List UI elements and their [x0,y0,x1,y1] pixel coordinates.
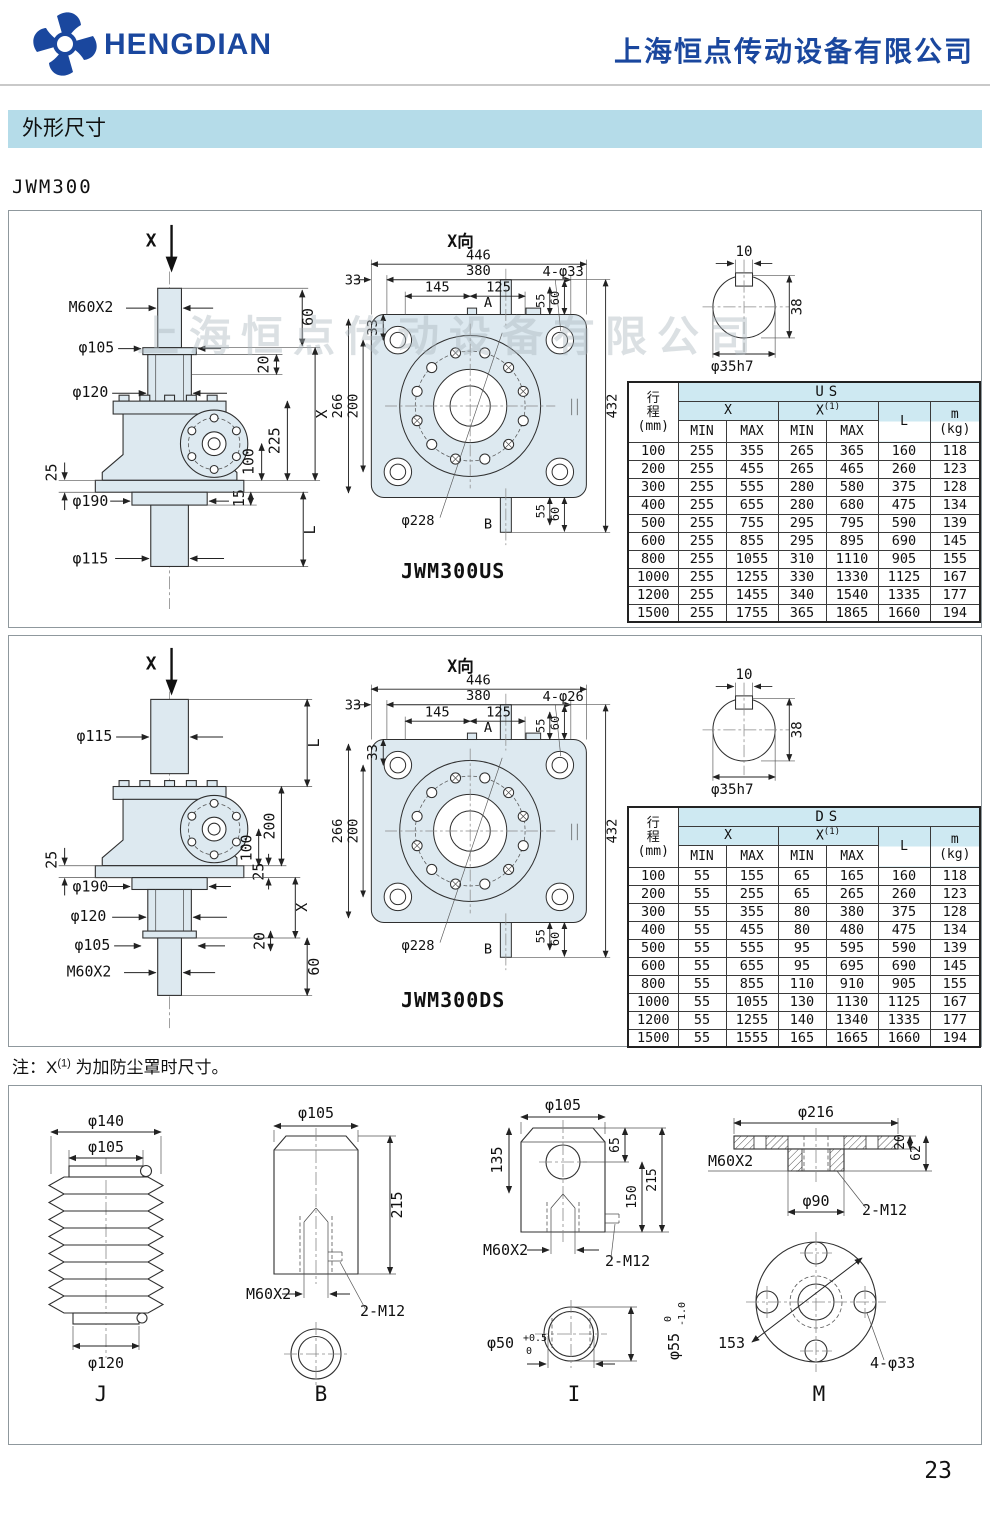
table-cell: 265 [826,885,878,903]
table-cell: 65 [778,885,826,903]
table-cell: 310 [778,550,826,568]
port-label: B [484,942,492,958]
table-cell: 1000 [628,993,678,1011]
col-header-x1: X(1) [778,826,878,845]
clevis-end-drawing-i: φ105 135 65 150 215 M60X2 2-M12 [479,1096,709,1396]
dim-label: 20 [251,932,269,950]
table-cell: 55 [678,1029,726,1047]
company-name: 上海恒点传动设备有限公司 [614,30,974,70]
fitting-label-i: I [554,1382,594,1406]
dim-label: φ190 [73,877,109,895]
col-header-stroke: 行 程 (mm) [628,382,678,442]
table-cell: 1130 [826,993,878,1011]
dim-label: φ35h7 [711,359,754,375]
port-label: A [484,720,493,736]
fitting-label-m: M [799,1382,839,1406]
table-cell: 123 [930,885,980,903]
table-cell: 300 [628,903,678,921]
table-cell: 690 [878,957,930,975]
table-row: 3005535580380375128 [628,903,980,921]
table-cell: 118 [930,442,980,460]
table-row: 6005565595695690145 [628,957,980,975]
table-cell: 55 [678,867,726,885]
dim-label: φ120 [88,1354,124,1372]
dim-label: 2-M12 [360,1302,405,1320]
table-cell: 167 [930,993,980,1011]
us-dimension-table: 行 程 (mm) US X X(1) L m(kg) MIN MAX MIN M… [627,381,981,623]
table-cell: 155 [726,867,778,885]
table-cell: 475 [878,921,930,939]
table-cell: 1540 [826,586,878,604]
table-cell: 55 [678,1011,726,1029]
dim-label: 100 [240,448,258,475]
table-row: 4005545580480475134 [628,921,980,939]
table-cell: 55 [678,975,726,993]
plain-end-drawing-b: φ105 215 M60X2 2-M12 [244,1102,454,1397]
port-label: A [484,295,493,311]
table-cell: 475 [878,496,930,514]
model-label: JWM300 [12,176,93,198]
table-cell: 55 [678,957,726,975]
ds-dimension-table: 行 程 (mm) DS X X(1) L m(kg) MIN MAX MIN M… [627,806,981,1048]
dim-label: φ105 [298,1104,334,1122]
table-cell: 155 [930,550,980,568]
table-cell: 580 [826,478,878,496]
dim-label: 65 [608,1137,623,1153]
table-cell: 295 [778,532,826,550]
table-cell: 139 [930,939,980,957]
table-cell: 895 [826,532,878,550]
table-cell: 855 [726,975,778,993]
panel-jwm300ds: X φ115 25 φ1 [8,635,982,1047]
table-row: 500255755295795590139 [628,514,980,532]
col-header-min: MIN [778,845,826,867]
table-cell: 255 [678,478,726,496]
table-cell: 255 [678,532,726,550]
port-label: B [484,517,492,533]
table-cell: 194 [930,1029,980,1047]
table-cell: 500 [628,939,678,957]
dim-label: M60X2 [708,1152,753,1170]
dim-label: 215 [645,1168,660,1191]
flange-bottom-view [746,1232,886,1372]
table-row: 100055105513011301125167 [628,993,980,1011]
dim-label: φ115 [77,727,113,745]
jack-body-shapes [95,288,247,566]
dim-label: 200 [261,813,279,840]
dim-label: 150 [625,1185,640,1208]
table-cell: 1340 [826,1011,878,1029]
dim-label: 38 [790,721,806,738]
table-cell: 55 [678,993,726,1011]
table-cell: 340 [778,586,826,604]
table-cell: 590 [878,939,930,957]
table-cell: 1665 [826,1029,878,1047]
table-cell: 260 [878,885,930,903]
table-cell: 480 [826,921,878,939]
table-cell: 1500 [628,604,678,622]
dim-label: φ55 [665,1333,683,1360]
table-cell: 375 [878,478,930,496]
table-cell: 280 [778,496,826,514]
table-row: 2005525565265260123 [628,885,980,903]
table-cell: 1200 [628,586,678,604]
dim-label: φ105 [88,1138,124,1156]
table-cell: 255 [678,568,726,586]
worm-shaft-section-drawing: 10 38 φ35h7 [695,233,827,375]
table-cell: 123 [930,460,980,478]
flange-end-drawing-m: φ216 20 62 M60X2 φ90 2-M12 [704,1102,954,1402]
dim-label: 55 [533,294,547,308]
table-cell: 134 [930,921,980,939]
table-cell: 255 [678,586,726,604]
table-cell: 455 [726,921,778,939]
dim-label: 266 [330,819,346,844]
dim-label: 2-M12 [605,1252,650,1270]
dim-label: φ35h7 [711,782,754,798]
dim-label: φ50 [487,1334,514,1352]
gearbox-face-shapes [371,269,586,545]
table-cell: 55 [678,921,726,939]
table-cell: 255 [678,442,726,460]
table-row: 1500255175536518651660194 [628,604,980,622]
dim-label: 215 [388,1191,406,1218]
dim-tolerance: -1.0 [677,1302,688,1326]
table-cell: 855 [726,532,778,550]
table-cell: 165 [778,1029,826,1047]
table-cell: 167 [930,568,980,586]
table-cell: 905 [878,550,930,568]
table-cell: 95 [778,939,826,957]
col-header-max: MAX [826,845,878,867]
dim-label: 446 [466,673,491,689]
bellows-drawing-j: φ140 φ105 φ120 [11,1110,211,1380]
table-cell: 255 [726,885,778,903]
dim-label: 4-φ33 [870,1354,915,1372]
dim-label: M60X2 [67,963,112,981]
dim-label: 62 [909,1145,924,1161]
table-cell: 118 [930,867,980,885]
col-header-group: US [678,382,980,401]
table-cell: 400 [628,496,678,514]
col-header-x: X [678,401,778,420]
table-cell: 655 [726,496,778,514]
dim-label: 200 [346,819,362,844]
dim-label: φ228 [402,513,435,529]
dim-label: φ228 [402,938,435,954]
dim-label: M60X2 [69,298,114,316]
dim-label: 60 [548,507,562,521]
table-cell: 465 [826,460,878,478]
dim-label: 380 [466,688,491,704]
header-divider [0,84,990,86]
col-header-x: X [678,826,778,845]
table-row: 150055155516516651660194 [628,1029,980,1047]
table-cell: 100 [628,442,678,460]
dim-label: 10 [736,667,753,683]
table-row: 300255555280580375128 [628,478,980,496]
dim-label: 2-M12 [862,1201,907,1219]
dim-label: 432 [605,819,621,844]
table-cell: 1255 [726,568,778,586]
col-header-max: MAX [826,420,878,442]
dim-label: 145 [425,280,450,296]
dim-label: M60X2 [483,1241,528,1259]
table-cell: 160 [878,867,930,885]
dim-label: 25 [43,463,61,481]
table-cell: 128 [930,478,980,496]
dim-label: 4-φ33 [542,264,583,280]
worm-shaft-section-drawing: 10 38 φ35h7 [695,656,827,798]
table-cell: 690 [878,532,930,550]
table-cell: 255 [678,460,726,478]
table-cell: 680 [826,496,878,514]
dim-label: 55 [533,929,547,943]
dim-label: X [293,903,311,912]
table-row: 400255655280680475134 [628,496,980,514]
table-cell: 1000 [628,568,678,586]
dim-label: 266 [330,394,346,419]
table-cell: 910 [826,975,878,993]
table-cell: 300 [628,478,678,496]
table-row: 600255855295895690145 [628,532,980,550]
dim-label: 33 [365,744,381,761]
table-cell: 375 [878,903,930,921]
dim-label-group: φ55 0 -1.0 [663,1302,688,1360]
table-cell: 200 [628,885,678,903]
cylinder-bottom-view [284,1322,348,1386]
dim-label: 55 [533,504,547,518]
dim-label: 20 [255,356,273,374]
dim-label: 125 [486,705,511,721]
table-cell: 365 [826,442,878,460]
drawing-caption: JWM300US [401,559,505,583]
table-cell: 1255 [726,1011,778,1029]
col-header-l: L [878,401,930,442]
col-header-min: MIN [778,420,826,442]
dim-label: 60 [299,308,317,326]
dim-tolerance: +0.5 [523,1333,547,1344]
dim-label: 145 [425,705,450,721]
table-cell: 155 [930,975,980,993]
hengdian-logo-icon [30,8,100,80]
jwm300us-side-view-drawing: X M60X2 φ105 φ120 [21,217,333,613]
dim-label: φ120 [73,383,109,401]
col-header-max: MAX [726,420,778,442]
table-cell: 128 [930,903,980,921]
table-cell: 1125 [878,993,930,1011]
dim-label: 432 [605,394,621,419]
section-title-bar: 外形尺寸 [8,110,982,148]
table-cell: 255 [678,604,726,622]
fitting-label-b: B [301,1382,341,1406]
table-cell: 55 [678,903,726,921]
col-header-max: MAX [726,845,778,867]
table-cell: 1200 [628,1011,678,1029]
section-title: 外形尺寸 [22,117,106,140]
table-cell: 200 [628,460,678,478]
table-cell: 755 [726,514,778,532]
dim-label: L [301,525,319,534]
dim-label: φ216 [798,1103,834,1121]
table-cell: 800 [628,550,678,568]
table-cell: 905 [878,975,930,993]
dim-label: 20 [893,1134,908,1150]
dim-label: φ190 [73,492,109,510]
table-cell: 255 [678,514,726,532]
table-cell: 1500 [628,1029,678,1047]
dim-label: φ120 [71,907,107,925]
fitting-label-j: J [81,1382,121,1406]
table-cell: 255 [678,550,726,568]
dim-tolerance: 0 [663,1316,674,1322]
dim-label: 380 [466,263,491,279]
dim-label: φ90 [802,1192,829,1210]
panel-end-fittings: φ140 φ105 φ120 J φ105 [8,1085,982,1445]
table-cell: 555 [726,478,778,496]
col-header-min: MIN [678,845,726,867]
page-number: 23 [924,1458,952,1484]
table-cell: 134 [930,496,980,514]
table-row: 1000255125533013301125167 [628,568,980,586]
jwm300ds-front-view-drawing: X向 [321,648,623,982]
dim-label: 33 [345,272,362,288]
flange-section-shapes [734,1128,898,1182]
table-cell: 355 [726,442,778,460]
table-cell: 380 [826,903,878,921]
table-cell: 1555 [726,1029,778,1047]
col-header-l: L [878,826,930,867]
table-cell: 600 [628,957,678,975]
table-cell: 255 [678,496,726,514]
table-cell: 1110 [826,550,878,568]
table-cell: 140 [778,1011,826,1029]
dim-label: 200 [346,394,362,419]
dim-label: X [146,231,157,252]
table-cell: 655 [726,957,778,975]
panel-jwm300us: 上海恒点传动设备有限公司 X M60X2 [8,210,982,628]
table-cell: 194 [930,604,980,622]
dim-label: 125 [486,280,511,296]
cylinder-shapes [274,1128,358,1284]
dim-label: 446 [466,248,491,264]
dim-label: φ140 [88,1112,124,1130]
table-cell: 365 [778,604,826,622]
dim-label: φ115 [73,550,109,568]
dim-label: 225 [265,427,283,454]
table-cell: 145 [930,957,980,975]
jack-body-shapes [95,699,247,995]
table-cell: 590 [878,514,930,532]
dim-label: φ105 [545,1096,581,1114]
table-cell: 400 [628,921,678,939]
dim-label: M60X2 [246,1285,291,1303]
dim-label: 60 [548,932,562,946]
dim-label: 10 [736,244,753,260]
table-cell: 260 [878,460,930,478]
dim-label: 55 [533,719,547,733]
table-cell: 110 [778,975,826,993]
table-cell: 55 [678,939,726,957]
dim-label: 4-φ26 [542,689,583,705]
dim-label: 38 [790,298,806,315]
table-row: 80055855110910905155 [628,975,980,993]
table-row: 120055125514013401335177 [628,1011,980,1029]
table-cell: 795 [826,514,878,532]
dim-label: φ105 [78,339,114,357]
dim-label: 60 [548,291,562,305]
table-cell: 139 [930,514,980,532]
table-cell: 1330 [826,568,878,586]
col-header-min: MIN [678,420,726,442]
table-cell: 177 [930,586,980,604]
table-cell: 695 [826,957,878,975]
table-cell: 295 [778,514,826,532]
table-cell: 1055 [726,550,778,568]
table-row: 1005515565165160118 [628,867,980,885]
table-cell: 265 [778,460,826,478]
jwm300ds-side-view-drawing: X φ115 25 φ1 [21,640,333,1036]
table-row: 100255355265365160118 [628,442,980,460]
table-cell: 355 [726,903,778,921]
table-row: 200255455265465260123 [628,460,980,478]
table-cell: 595 [826,939,878,957]
table-cell: 1055 [726,993,778,1011]
table-cell: 80 [778,921,826,939]
footnote-sup: (1) [57,1057,70,1069]
table-cell: 500 [628,514,678,532]
table-cell: 145 [930,532,980,550]
table-cell: 95 [778,957,826,975]
col-header-stroke: 行 程 (mm) [628,807,678,867]
table-cell: 100 [628,867,678,885]
table-cell: 1660 [878,1029,930,1047]
clevis-shapes [521,1120,619,1242]
table-cell: 265 [778,442,826,460]
dim-label: 33 [345,697,362,713]
table-cell: 600 [628,532,678,550]
table-cell: 555 [726,939,778,957]
dim-label: 33 [365,319,381,336]
table-row: 80025510553101110905155 [628,550,980,568]
table-cell: 55 [678,885,726,903]
table-cell: 330 [778,568,826,586]
dim-label: 60 [548,716,562,730]
table-cell: 280 [778,478,826,496]
table-cell: 1755 [726,604,778,622]
jwm300us-front-view-drawing: X向 [321,223,623,557]
dim-label: φ105 [75,936,111,954]
table-cell: 1335 [878,586,930,604]
dim-tolerance: 0 [526,1346,532,1357]
drawing-caption: JWM300DS [401,988,505,1012]
table-cell: 130 [778,993,826,1011]
dim-label: X [146,654,157,675]
dim-label: 25 [43,851,61,869]
table-row: 1200255145534015401335177 [628,586,980,604]
dim-label: 100 [238,834,256,861]
table-cell: 1865 [826,604,878,622]
table-cell: 1455 [726,586,778,604]
table-cell: 1125 [878,568,930,586]
footnote: 注：X(1) 为加防尘罩时尺寸。 [12,1053,229,1078]
col-header-m: m(kg) [930,826,980,867]
table-cell: 1335 [878,1011,930,1029]
col-header-x1: X(1) [778,401,878,420]
table-cell: 165 [826,867,878,885]
col-header-group: DS [678,807,980,826]
table-cell: 160 [878,442,930,460]
